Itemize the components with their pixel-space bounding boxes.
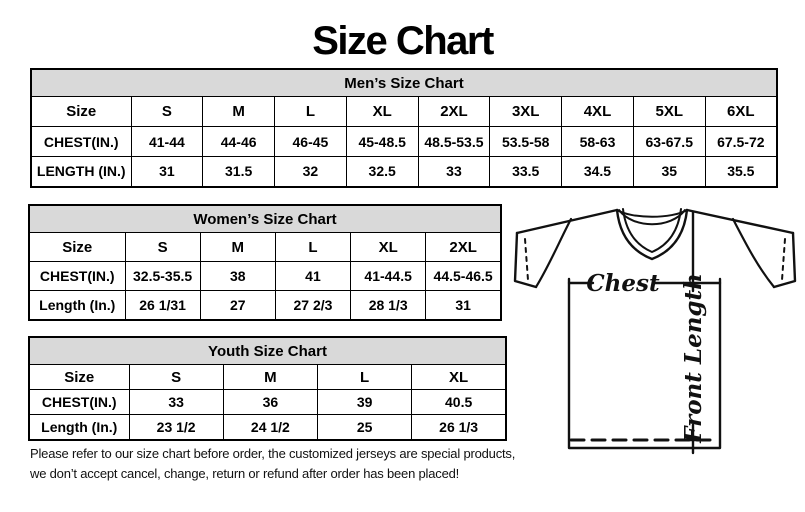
- row-header: Size: [29, 233, 125, 262]
- size-cell: 31: [426, 291, 501, 320]
- size-cell: 26 1/3: [412, 415, 506, 440]
- shirt-cuff-dash-left: [525, 239, 528, 280]
- size-cell: 4XL: [562, 97, 634, 127]
- size-cell: M: [200, 233, 275, 262]
- size-cell: 45-48.5: [346, 127, 418, 157]
- size-cell: 44-46: [203, 127, 275, 157]
- shirt-cuff-dash-right: [782, 239, 785, 280]
- size-cell: M: [223, 365, 317, 390]
- row-header: Length (In.): [29, 415, 129, 440]
- size-cell: 48.5-53.5: [418, 127, 490, 157]
- size-cell: 31.5: [203, 157, 275, 187]
- size-cell: S: [125, 233, 200, 262]
- size-cell: 41: [275, 262, 350, 291]
- size-cell: 3XL: [490, 97, 562, 127]
- row-header: CHEST(IN.): [31, 127, 131, 157]
- size-cell: 44.5-46.5: [426, 262, 501, 291]
- size-cell: XL: [351, 233, 426, 262]
- youth-size-table: Youth Size ChartSizeSMLXLCHEST(IN.)33363…: [28, 336, 507, 441]
- tshirt-measurement-diagram: Chest Front Length: [505, 195, 805, 460]
- footer-line-2: we don’t accept cancel, change, return o…: [30, 464, 550, 484]
- size-cell: 25: [318, 415, 412, 440]
- size-cell: 67.5-72: [705, 127, 777, 157]
- shirt-shoulder-right: [687, 210, 793, 233]
- size-cell: 33: [418, 157, 490, 187]
- shirt-armhole-left: [536, 219, 571, 287]
- shirt-shoulder-left: [517, 210, 617, 233]
- row-header: Size: [29, 365, 129, 390]
- size-cell: 39: [318, 390, 412, 415]
- size-cell: 31: [131, 157, 203, 187]
- row-header: CHEST(IN.): [29, 262, 125, 291]
- size-cell: M: [203, 97, 275, 127]
- size-cell: L: [318, 365, 412, 390]
- shirt-collar-back-1: [617, 210, 687, 217]
- size-cell: 28 1/3: [351, 291, 426, 320]
- page-title: Size Chart: [0, 20, 805, 62]
- size-cell: XL: [412, 365, 506, 390]
- shirt-armhole-right: [733, 219, 774, 287]
- size-cell: 2XL: [426, 233, 501, 262]
- size-cell: XL: [346, 97, 418, 127]
- size-cell: 63-67.5: [633, 127, 705, 157]
- size-cell: 5XL: [633, 97, 705, 127]
- size-cell: 34.5: [562, 157, 634, 187]
- size-cell: L: [275, 233, 350, 262]
- chest-label: Chest: [586, 270, 660, 297]
- row-header: Length (In.): [29, 291, 125, 320]
- size-cell: 6XL: [705, 97, 777, 127]
- size-cell: S: [131, 97, 203, 127]
- size-cell: 41-44: [131, 127, 203, 157]
- front-length-label: Front Length: [680, 273, 707, 444]
- table-title: Youth Size Chart: [29, 337, 506, 365]
- size-cell: 38: [200, 262, 275, 291]
- row-header: LENGTH (IN.): [31, 157, 131, 187]
- size-cell: L: [275, 97, 347, 127]
- footer-note: Please refer to our size chart before or…: [30, 444, 550, 484]
- size-cell: 58-63: [562, 127, 634, 157]
- mens-size-table: Men’s Size ChartSizeSMLXL2XL3XL4XL5XL6XL…: [30, 68, 778, 188]
- size-cell: 33.5: [490, 157, 562, 187]
- size-cell: 27: [200, 291, 275, 320]
- size-cell: 35.5: [705, 157, 777, 187]
- table-title: Men’s Size Chart: [31, 69, 777, 97]
- size-cell: 53.5-58: [490, 127, 562, 157]
- footer-line-1: Please refer to our size chart before or…: [30, 444, 550, 464]
- size-chart-page: Size Chart Men’s Size ChartSizeSMLXL2XL3…: [0, 0, 805, 512]
- size-cell: 24 1/2: [223, 415, 317, 440]
- table-title: Women’s Size Chart: [29, 205, 501, 233]
- size-cell: 33: [129, 390, 223, 415]
- size-cell: 32.5-35.5: [125, 262, 200, 291]
- size-cell: 27 2/3: [275, 291, 350, 320]
- womens-size-table: Women’s Size ChartSizeSMLXL2XLCHEST(IN.)…: [28, 204, 502, 321]
- size-cell: 2XL: [418, 97, 490, 127]
- row-header: CHEST(IN.): [29, 390, 129, 415]
- row-header: Size: [31, 97, 131, 127]
- size-cell: 36: [223, 390, 317, 415]
- size-cell: 32: [275, 157, 347, 187]
- size-cell: 32.5: [346, 157, 418, 187]
- size-cell: 46-45: [275, 127, 347, 157]
- size-cell: 41-44.5: [351, 262, 426, 291]
- size-cell: S: [129, 365, 223, 390]
- size-cell: 40.5: [412, 390, 506, 415]
- size-cell: 35: [633, 157, 705, 187]
- size-cell: 23 1/2: [129, 415, 223, 440]
- size-cell: 26 1/31: [125, 291, 200, 320]
